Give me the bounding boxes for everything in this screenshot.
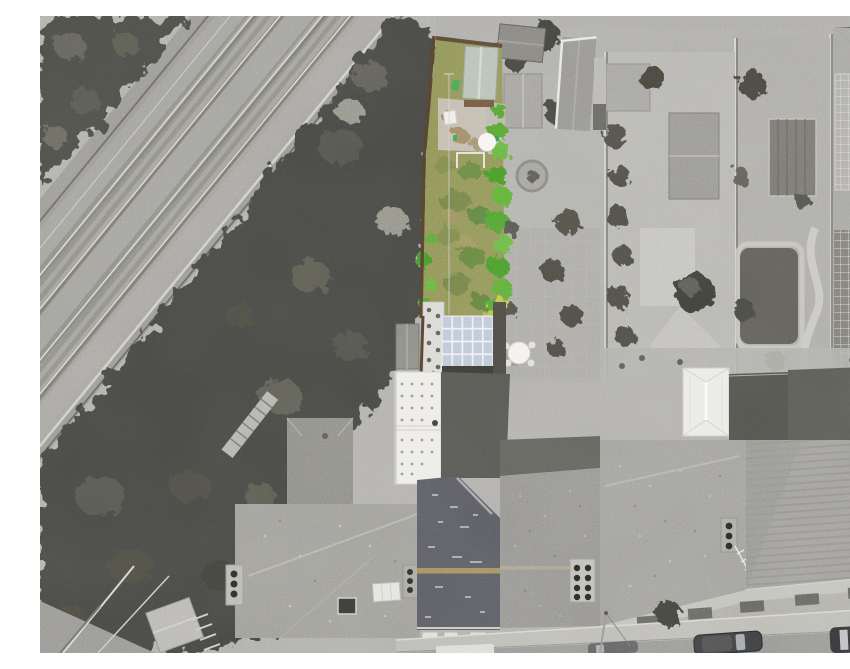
aerial-photo xyxy=(40,16,850,653)
blotch-overlay xyxy=(40,16,850,653)
